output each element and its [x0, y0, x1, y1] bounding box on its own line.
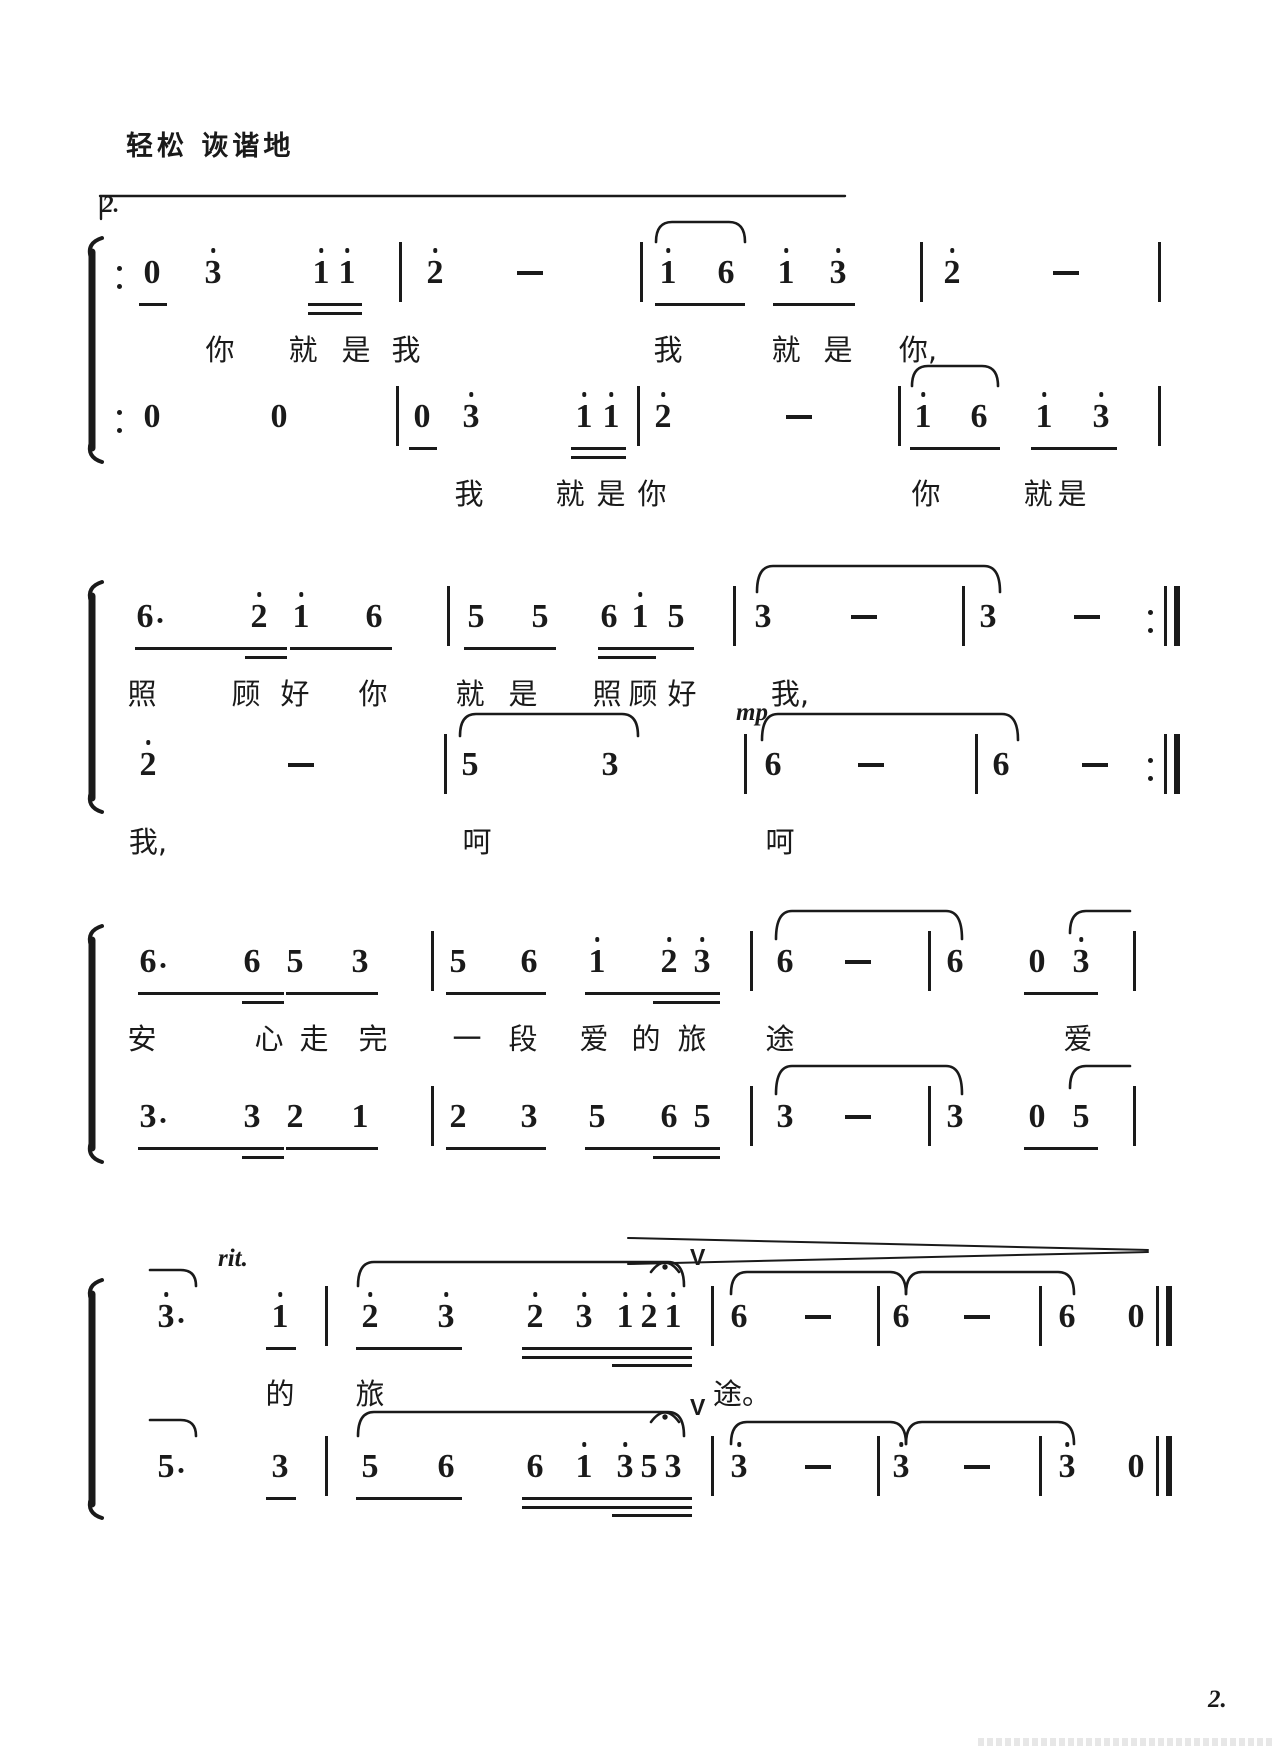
barline — [1158, 242, 1161, 302]
digit: 1 — [632, 598, 649, 635]
barline — [447, 586, 450, 646]
octave-dot-icon — [836, 248, 841, 253]
beam — [522, 1356, 692, 1359]
sustain-dash — [1082, 763, 1108, 767]
barline — [750, 1086, 753, 1146]
note-digit: 6 — [971, 400, 988, 434]
beam — [308, 303, 362, 306]
barline — [637, 386, 640, 446]
digit: 5 — [589, 1098, 606, 1135]
note-digit: 3 — [830, 256, 847, 290]
lyric-syllable: 心 — [254, 1025, 283, 1054]
octave-dot-icon — [469, 392, 474, 397]
final-thick-barline — [1166, 1286, 1172, 1346]
note-digit: 2 — [527, 1300, 544, 1334]
sustain-dash — [964, 1465, 990, 1469]
beam — [356, 1497, 462, 1500]
note-digit: 3 — [947, 1100, 964, 1134]
octave-dot-icon — [647, 1292, 652, 1297]
sustain-dash — [288, 763, 314, 767]
barline — [399, 242, 402, 302]
note-digit: 2 — [944, 256, 961, 290]
lyric-syllable: 你 — [358, 680, 387, 709]
beam — [409, 447, 437, 450]
digit: 6 — [777, 943, 794, 980]
octave-dot-icon — [533, 1292, 538, 1297]
breath-mark: V — [690, 1396, 705, 1419]
beam — [286, 1147, 378, 1150]
lyric-syllable: 途。 — [713, 1380, 771, 1409]
beam — [446, 992, 546, 995]
lyric-syllable: 你, — [899, 336, 937, 365]
beam — [655, 303, 745, 306]
octave-dot-icon — [1099, 392, 1104, 397]
lyric-syllable: 途 — [765, 1025, 794, 1054]
repeat-dot-icon — [1148, 610, 1153, 615]
sustain-dash — [517, 271, 543, 275]
digit: 2 — [427, 254, 444, 291]
barline — [396, 386, 399, 446]
lyric-syllable: 好 — [280, 680, 309, 709]
beam — [135, 647, 287, 650]
lyric-syllable: 是 — [508, 680, 537, 709]
digit: 6 — [366, 598, 383, 635]
duration-dot-icon — [160, 963, 165, 968]
digit: 5 — [641, 1448, 658, 1485]
octave-dot-icon — [623, 1442, 628, 1447]
digit: 5 — [668, 598, 685, 635]
digit: 2 — [362, 1298, 379, 1335]
repeat-thick-barline — [1174, 734, 1180, 794]
final-thin-barline — [1156, 1436, 1159, 1496]
note-digit: 1 — [603, 400, 620, 434]
digit: 3 — [1059, 1448, 1076, 1485]
digit: 3 — [244, 1098, 261, 1135]
octave-dot-icon — [146, 740, 151, 745]
sustain-dash — [786, 415, 812, 419]
duration-dot-icon — [178, 1318, 183, 1323]
digit: 6 — [947, 943, 964, 980]
digit: 1 — [352, 1098, 369, 1135]
digit: 1 — [313, 254, 330, 291]
lyric-syllable: 好 — [667, 680, 696, 709]
digit: 0 — [414, 398, 431, 435]
digit: 5 — [462, 746, 479, 783]
beam — [571, 456, 626, 459]
note-digit: 6 — [521, 945, 538, 979]
digit: 3 — [1073, 943, 1090, 980]
digit: 3 — [617, 1448, 634, 1485]
note-digit: 1 — [576, 1450, 593, 1484]
sustain-dash — [805, 1315, 831, 1319]
beam — [612, 1514, 692, 1517]
volta-label: 2. — [102, 192, 119, 218]
note-digit: 0 — [1029, 945, 1046, 979]
note-digit: 3 — [777, 1100, 794, 1134]
note-digit: 5 — [589, 1100, 606, 1134]
digit: 3 — [1093, 398, 1110, 435]
barline — [877, 1436, 880, 1496]
digit: 0 — [271, 398, 288, 435]
duration-dot-icon — [160, 1118, 165, 1123]
note-digit: 1 — [313, 256, 330, 290]
beam — [290, 647, 392, 650]
barline — [431, 931, 434, 991]
beam — [653, 1156, 720, 1159]
octave-dot-icon — [299, 592, 304, 597]
note-digit: 6 — [140, 945, 157, 979]
digit: 1 — [576, 1448, 593, 1485]
note-digit: 2 — [661, 945, 678, 979]
note-digit: 6 — [601, 600, 618, 634]
lyric-syllable: 顾 — [231, 680, 260, 709]
lyric-syllable: 你 — [637, 480, 666, 509]
note-digit: 3 — [1073, 945, 1090, 979]
digit: 3 — [830, 254, 847, 291]
digit: 0 — [1029, 943, 1046, 980]
octave-dot-icon — [582, 1442, 587, 1447]
beam — [773, 303, 855, 306]
note-digit: 3 — [602, 748, 619, 782]
beam — [139, 303, 167, 306]
digit: 3 — [521, 1098, 538, 1135]
beam — [1024, 992, 1098, 995]
note-digit: 6 — [661, 1100, 678, 1134]
note-digit: 5 — [462, 748, 479, 782]
digit: 6 — [661, 1098, 678, 1135]
dynamic-marking: mp — [736, 700, 768, 725]
note-digit: 0 — [1128, 1450, 1145, 1484]
octave-dot-icon — [737, 1442, 742, 1447]
note-digit: 2 — [427, 256, 444, 290]
note-digit: 6 — [731, 1300, 748, 1334]
note-digit: 0 — [1128, 1300, 1145, 1334]
digit: 5 — [362, 1448, 379, 1485]
lyric-syllable: 照 — [592, 680, 621, 709]
digit: 1 — [293, 598, 310, 635]
octave-dot-icon — [899, 1442, 904, 1447]
octave-dot-icon — [950, 248, 955, 253]
octave-dot-icon — [671, 1292, 676, 1297]
digit: 2 — [527, 1298, 544, 1335]
note-digit: 5 — [158, 1450, 175, 1484]
octave-dot-icon — [582, 392, 587, 397]
lyric-syllable: 段 — [508, 1025, 537, 1054]
digit: 3 — [140, 1098, 157, 1135]
score-layer: mprit.VV0311216132你就是我我就是你,00031121613我就… — [0, 0, 1278, 1757]
note-digit: 6 — [777, 945, 794, 979]
octave-dot-icon — [582, 1292, 587, 1297]
note-digit: 5 — [641, 1450, 658, 1484]
octave-dot-icon — [345, 248, 350, 253]
digit: 0 — [144, 254, 161, 291]
beam — [245, 656, 287, 659]
note-digit: 3 — [576, 1300, 593, 1334]
octave-dot-icon — [433, 248, 438, 253]
octave-dot-icon — [921, 392, 926, 397]
lyric-syllable: 我 — [653, 336, 682, 365]
beam — [585, 1147, 720, 1150]
sustain-dash — [1074, 615, 1100, 619]
lyric-syllable: 是 — [596, 480, 625, 509]
barline — [1133, 931, 1136, 991]
note-digit: 3 — [463, 400, 480, 434]
lyric-syllable: 就 — [288, 336, 317, 365]
note-digit: 6 — [765, 748, 782, 782]
barline — [444, 734, 447, 794]
digit: 3 — [463, 398, 480, 435]
beam — [308, 312, 362, 315]
sustain-dash — [1053, 271, 1079, 275]
digit: 0 — [1128, 1448, 1145, 1485]
beam — [242, 1156, 284, 1159]
digit: 6 — [601, 598, 618, 635]
digit: 5 — [532, 598, 549, 635]
note-digit: 2 — [287, 1100, 304, 1134]
digit: 3 — [777, 1098, 794, 1135]
lyric-syllable: 是 — [1057, 480, 1086, 509]
repeat-dot-icon — [117, 428, 122, 433]
note-digit: 6 — [244, 945, 261, 979]
digit: 3 — [272, 1448, 289, 1485]
digit: 6 — [137, 598, 154, 635]
lyric-syllable: 爱 — [1063, 1025, 1092, 1054]
digit: 2 — [251, 598, 268, 635]
note-digit: 6 — [893, 1300, 910, 1334]
octave-dot-icon — [638, 592, 643, 597]
lyric-syllable: 安 — [127, 1025, 156, 1054]
octave-dot-icon — [211, 248, 216, 253]
barline — [325, 1436, 328, 1496]
digit: 6 — [527, 1448, 544, 1485]
octave-dot-icon — [595, 937, 600, 942]
digit: 6 — [971, 398, 988, 435]
digit: 6 — [1059, 1298, 1076, 1335]
sustain-dash — [805, 1465, 831, 1469]
sustain-dash — [851, 615, 877, 619]
digit: 3 — [893, 1448, 910, 1485]
octave-dot-icon — [661, 392, 666, 397]
note-digit: 2 — [641, 1300, 658, 1334]
beam — [242, 1001, 284, 1004]
digit: 2 — [287, 1098, 304, 1135]
lyric-syllable: 旅 — [355, 1380, 384, 1409]
digit: 6 — [438, 1448, 455, 1485]
note-digit: 3 — [893, 1450, 910, 1484]
duration-dot-icon — [157, 618, 162, 623]
lyric-syllable: 我, — [771, 680, 809, 709]
note-digit: 5 — [362, 1450, 379, 1484]
note-digit: 3 — [980, 600, 997, 634]
octave-dot-icon — [667, 937, 672, 942]
note-digit: 1 — [632, 600, 649, 634]
digit: 6 — [718, 254, 735, 291]
note-digit: 1 — [576, 400, 593, 434]
note-digit: 2 — [450, 1100, 467, 1134]
note-digit: 0 — [271, 400, 288, 434]
octave-dot-icon — [257, 592, 262, 597]
barline — [1158, 386, 1161, 446]
digit: 1 — [617, 1298, 634, 1335]
barline — [975, 734, 978, 794]
sheet-music-page: mprit.VV0311216132你就是我我就是你,00031121613我就… — [0, 0, 1278, 1757]
note-digit: 6 — [527, 1450, 544, 1484]
lyric-syllable: 爱 — [579, 1025, 608, 1054]
faint-watermark — [978, 1738, 1273, 1746]
octave-dot-icon — [609, 392, 614, 397]
octave-dot-icon — [784, 248, 789, 253]
note-digit: 3 — [438, 1300, 455, 1334]
note-digit: 3 — [244, 1100, 261, 1134]
lyric-syllable: 就 — [771, 336, 800, 365]
digit: 0 — [144, 398, 161, 435]
digit: 5 — [450, 943, 467, 980]
beam — [266, 1497, 296, 1500]
note-digit: 1 — [665, 1300, 682, 1334]
note-digit: 3 — [665, 1450, 682, 1484]
digit: 1 — [660, 254, 677, 291]
note-digit: 1 — [617, 1300, 634, 1334]
repeat-dot-icon — [117, 284, 122, 289]
note-digit: 5 — [532, 600, 549, 634]
beam — [522, 1506, 692, 1509]
note-digit: 5 — [287, 945, 304, 979]
barline — [898, 386, 901, 446]
digit: 3 — [694, 943, 711, 980]
repeat-dot-icon — [117, 266, 122, 271]
digit: 5 — [1073, 1098, 1090, 1135]
digit: 1 — [665, 1298, 682, 1335]
note-digit: 5 — [694, 1100, 711, 1134]
lyric-syllable: 你 — [911, 480, 940, 509]
digit: 3 — [755, 598, 772, 635]
note-digit: 6 — [366, 600, 383, 634]
digit: 2 — [944, 254, 961, 291]
note-digit: 2 — [655, 400, 672, 434]
digit: 1 — [603, 398, 620, 435]
digit: 6 — [765, 746, 782, 783]
digit: 3 — [352, 943, 369, 980]
beam — [598, 647, 694, 650]
beam — [286, 992, 378, 995]
digit: 6 — [893, 1298, 910, 1335]
digit: 6 — [140, 943, 157, 980]
beam — [464, 647, 556, 650]
note-digit: 1 — [589, 945, 606, 979]
note-digit: 3 — [272, 1450, 289, 1484]
note-digit: 6 — [137, 600, 154, 634]
lyric-syllable: 旅 — [677, 1025, 706, 1054]
lyric-syllable: 就 — [455, 680, 484, 709]
note-digit: 3 — [352, 945, 369, 979]
note-digit: 2 — [251, 600, 268, 634]
note-digit: 1 — [272, 1300, 289, 1334]
digit: 3 — [205, 254, 222, 291]
repeat-thin-barline — [1164, 586, 1167, 646]
note-digit: 3 — [617, 1450, 634, 1484]
barline — [750, 931, 753, 991]
digit: 1 — [915, 398, 932, 435]
beam — [522, 1497, 692, 1500]
octave-dot-icon — [1079, 937, 1084, 942]
lyric-syllable: 的 — [631, 1025, 660, 1054]
sustain-dash — [845, 1115, 871, 1119]
digit: 0 — [1029, 1098, 1046, 1135]
octave-dot-icon — [368, 1292, 373, 1297]
digit: 3 — [665, 1448, 682, 1485]
lyric-syllable: 我 — [391, 336, 420, 365]
note-digit: 3 — [1059, 1450, 1076, 1484]
dynamic-marking: rit. — [218, 1246, 248, 1271]
lyric-syllable: 走 — [299, 1025, 328, 1054]
note-digit: 1 — [352, 1100, 369, 1134]
barline — [744, 734, 747, 794]
beam — [598, 656, 656, 659]
digit: 3 — [731, 1448, 748, 1485]
beam — [571, 447, 626, 450]
barline — [431, 1086, 434, 1146]
barline — [928, 1086, 931, 1146]
octave-dot-icon — [278, 1292, 283, 1297]
note-digit: 1 — [293, 600, 310, 634]
note-digit: 1 — [1036, 400, 1053, 434]
note-digit: 1 — [660, 256, 677, 290]
digit: 2 — [140, 746, 157, 783]
note-digit: 3 — [205, 256, 222, 290]
octave-dot-icon — [319, 248, 324, 253]
barline — [928, 931, 931, 991]
lyric-syllable: 呵 — [462, 828, 491, 857]
lyric-syllable: 就 — [1023, 480, 1052, 509]
barline — [962, 586, 965, 646]
beam — [1024, 1147, 1098, 1150]
note-digit: 5 — [450, 945, 467, 979]
note-digit: 5 — [668, 600, 685, 634]
note-digit: 0 — [144, 256, 161, 290]
octave-dot-icon — [444, 1292, 449, 1297]
barline — [877, 1286, 880, 1346]
digit: 2 — [661, 943, 678, 980]
digit: 2 — [655, 398, 672, 435]
note-digit: 3 — [521, 1100, 538, 1134]
lyric-syllable: 顾 — [628, 680, 657, 709]
repeat-dot-icon — [1148, 776, 1153, 781]
note-digit: 6 — [1059, 1300, 1076, 1334]
digit: 6 — [244, 943, 261, 980]
final-thick-barline — [1166, 1436, 1172, 1496]
octave-dot-icon — [623, 1292, 628, 1297]
octave-dot-icon — [164, 1292, 169, 1297]
note-digit: 6 — [718, 256, 735, 290]
beam — [356, 1347, 462, 1350]
barline — [1133, 1086, 1136, 1146]
octave-dot-icon — [1042, 392, 1047, 397]
digit: 0 — [1128, 1298, 1145, 1335]
note-digit: 1 — [339, 256, 356, 290]
barline — [1039, 1286, 1042, 1346]
lyric-syllable: 我, — [129, 828, 167, 857]
repeat-thin-barline — [1164, 734, 1167, 794]
lyric-syllable: 照 — [127, 680, 156, 709]
lyric-syllable: 我 — [454, 480, 483, 509]
digit: 1 — [339, 254, 356, 291]
barline — [920, 242, 923, 302]
digit: 1 — [272, 1298, 289, 1335]
note-digit: 6 — [947, 945, 964, 979]
note-digit: 5 — [468, 600, 485, 634]
lyric-syllable: 你 — [205, 336, 234, 365]
barline — [640, 242, 643, 302]
